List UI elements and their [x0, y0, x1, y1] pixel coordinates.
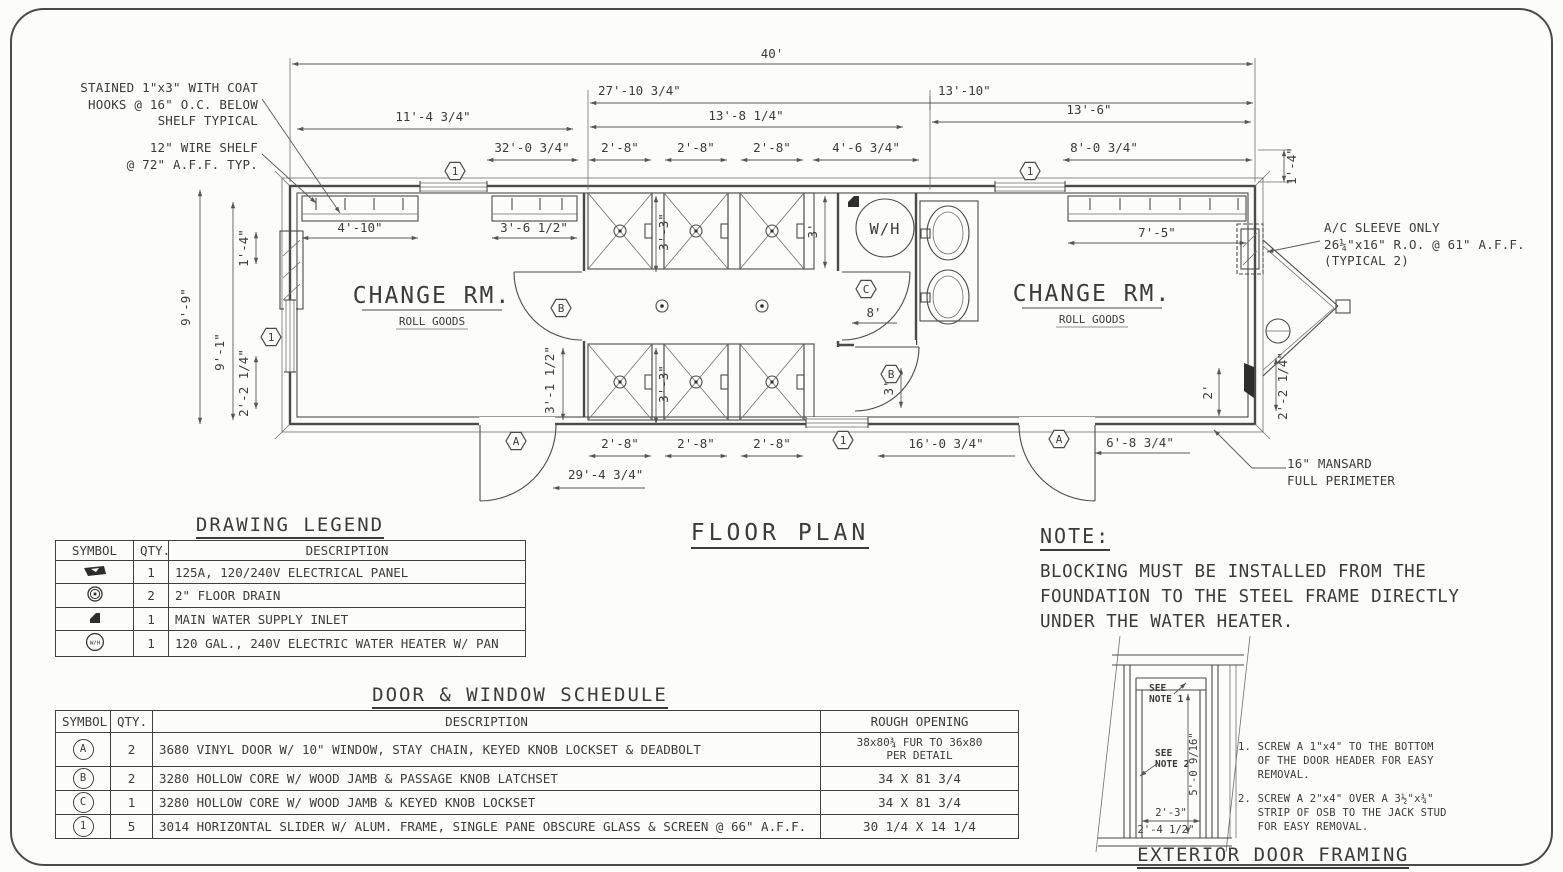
dim-7-5: 7'-5"	[1138, 225, 1176, 240]
window-marker-1c: 1	[268, 331, 275, 344]
roll-goods-right-label: ROLL GOODS	[1059, 313, 1125, 326]
legend-header-description: DESCRIPTION	[169, 541, 526, 561]
schedule-header-rough-opening: ROUGH OPENING	[821, 711, 1019, 733]
note-block: NOTE: BLOCKING MUST BE INSTALLED FROM TH…	[1040, 524, 1540, 635]
framing-note-2: 2. SCREW A 2"x4" OVER A 3½"x¾" STRIP OF …	[1238, 792, 1447, 835]
dim-3-6: 3'-6 1/2"	[500, 220, 568, 235]
dim-3-1: 3'-1 1/2"	[542, 346, 557, 414]
schedule-header-qty: QTY.	[111, 711, 153, 733]
dim-2-8-b2: 2'-8"	[677, 436, 715, 451]
dim-2ft: 2'	[1200, 384, 1215, 399]
framing-dim-height: 5'-0 9/16"	[1188, 732, 1200, 795]
water-heater-label: W/H	[870, 220, 901, 238]
table-row: W/H 1 120 GAL., 240V ELECTRIC WATER HEAT…	[56, 631, 526, 657]
dim-2-8-t2: 2'-8"	[677, 140, 715, 155]
dim-2-8-t1: 2'-8"	[601, 140, 639, 155]
wire-shelves	[302, 196, 1246, 221]
drawing-sheet: 40' 27'-10 3/4" 13'-10" 13'-8 1/4" 13'-6…	[0, 0, 1563, 872]
dim-11-4: 11'-4 3/4"	[395, 109, 470, 124]
dim-27-10: 27'-10 3/4"	[598, 83, 681, 98]
dim-3-top: 3'	[805, 223, 820, 238]
see-note-1-label: SEE NOTE 1	[1149, 683, 1183, 706]
note-body: BLOCKING MUST BE INSTALLED FROM THE FOUN…	[1040, 560, 1540, 635]
window-marker-1a: 1	[452, 165, 459, 178]
dim-1-4-right: 1'-4"	[1284, 147, 1299, 185]
electrical-panel-icon	[56, 561, 134, 584]
door-c-badge: C	[56, 791, 111, 815]
floor-drain-icon	[56, 584, 134, 608]
table-row: 2 2" FLOOR DRAIN	[56, 584, 526, 608]
floor-drain-symbols	[656, 300, 768, 312]
dim-2-8-b3: 2'-8"	[753, 436, 791, 451]
svg-text:W/H: W/H	[89, 640, 99, 646]
dim-13-8: 13'-8 1/4"	[708, 108, 783, 123]
door-framing-title: EXTERIOR DOOR FRAMING	[1128, 844, 1418, 869]
wire-shelf-callout: 12" WIRE SHELF @ 72" A.F.F. TYP.	[58, 140, 258, 173]
table-row: 1 MAIN WATER SUPPLY INLET	[56, 608, 526, 631]
table-row: A 2 3680 VINYL DOOR W/ 10" WINDOW, STAY …	[56, 733, 1019, 767]
framing-note-1: 1. SCREW A 1"x4" TO THE BOTTOM OF THE DO…	[1238, 740, 1434, 783]
dim-32-0: 32'-0 3/4"	[494, 140, 569, 155]
ac-sleeve-right	[1237, 224, 1263, 274]
legend-title: DRAWING LEGEND	[55, 514, 525, 539]
change-rm-right-label: CHANGE RM.	[1013, 281, 1171, 307]
water-heater-icon: W/H	[56, 631, 134, 657]
door-marker-b1: B	[558, 302, 565, 315]
table-row: C 1 3280 HOLLOW CORE W/ WOOD JAMB & KEYE…	[56, 791, 1019, 815]
dim-9-1: 9'-1"	[212, 333, 227, 371]
window-1-badge: 1	[56, 815, 111, 839]
dim-3-3-top: 3'-3"	[656, 213, 671, 251]
framing-dim-width-outer: 2'-4 1/2"	[1138, 824, 1195, 836]
electrical-panel-symbol	[1244, 363, 1254, 398]
dim-8-0: 8'-0 3/4"	[1070, 140, 1138, 155]
legend-header-symbol: SYMBOL	[56, 541, 134, 561]
dim-2-8-t3: 2'-8"	[753, 140, 791, 155]
coat-hooks-callout: STAINED 1"x3" WITH COAT HOOKS @ 16" O.C.…	[58, 80, 258, 130]
schedule-title: DOOR & WINDOW SCHEDULE	[240, 684, 800, 709]
dim-2-2-left: 2'-2 1/4"	[236, 349, 251, 417]
door-marker-b2: B	[888, 368, 895, 381]
ac-sleeve-callout: A/C SLEEVE ONLY 26¼"x16" R.O. @ 61" A.F.…	[1324, 220, 1544, 270]
door-marker-c: C	[863, 283, 870, 296]
mansard-callout: 16" MANSARD FULL PERIMETER	[1287, 456, 1457, 489]
door-a-badge: A	[56, 733, 111, 767]
window-marker-1b: 1	[1027, 165, 1034, 178]
schedule-header-description: DESCRIPTION	[153, 711, 821, 733]
dim-6-8: 6'-8 3/4"	[1106, 435, 1174, 450]
water-supply-inlet-icon	[56, 608, 134, 631]
dim-2-8-b1: 2'-8"	[601, 436, 639, 451]
floor-plan-title: FLOOR PLAN	[655, 520, 905, 549]
dim-13-10: 13'-10"	[938, 83, 991, 98]
door-marker-a2: A	[1056, 433, 1063, 446]
legend-header-qty: QTY.	[134, 541, 169, 561]
change-rm-left-label: CHANGE RM.	[353, 283, 511, 309]
dim-13-6: 13'-6"	[1066, 102, 1111, 117]
dim-8ft: 8'	[866, 305, 881, 320]
shower-stalls	[588, 193, 814, 420]
table-row: 1 5 3014 HORIZONTAL SLIDER W/ ALUM. FRAM…	[56, 815, 1019, 839]
see-note-2-label: SEE NOTE 2	[1155, 748, 1189, 771]
dim-4-10: 4'-10"	[337, 220, 382, 235]
dim-16-0: 16'-0 3/4"	[908, 436, 983, 451]
water-supply-inlet-symbol	[848, 196, 859, 207]
dim-2-2-right: 2'-2 1/4"	[1275, 352, 1290, 420]
framing-dim-width-inner: 2'-3"	[1155, 807, 1187, 819]
door-framing-detail: 5'-0 9/16" 2'-3" 2'-4 1/2"	[1096, 636, 1250, 852]
table-row: 1 125A, 120/240V ELECTRICAL PANEL	[56, 561, 526, 584]
roll-goods-left-label: ROLL GOODS	[399, 315, 465, 328]
schedule-header-symbol: SYMBOL	[56, 711, 111, 733]
door-marker-a1: A	[513, 435, 520, 448]
door-window-schedule-table: SYMBOL QTY. DESCRIPTION ROUGH OPENING A …	[55, 710, 1019, 839]
dim-29-4: 29'-4 3/4"	[568, 467, 643, 482]
dim-3-3-bottom: 3'-3"	[656, 365, 671, 403]
dim-4-6: 4'-6 3/4"	[832, 140, 900, 155]
door-b-badge: B	[56, 767, 111, 791]
drawing-legend-table: SYMBOL QTY. DESCRIPTION 1 125A, 120/240V…	[55, 540, 526, 657]
ac-sleeve-left	[280, 231, 303, 309]
window-marker-1d: 1	[840, 434, 847, 447]
table-row: B 2 3280 HOLLOW CORE W/ WOOD JAMB & PASS…	[56, 767, 1019, 791]
note-title: NOTE:	[1040, 524, 1110, 551]
dim-9-9: 9'-9"	[178, 288, 193, 326]
dim-1-4-left: 1'-4"	[236, 229, 251, 267]
sinks	[920, 201, 978, 324]
dim-40ft: 40'	[761, 46, 784, 61]
room-labels: CHANGE RM. ROLL GOODS CHANGE RM. ROLL GO…	[353, 220, 1171, 329]
